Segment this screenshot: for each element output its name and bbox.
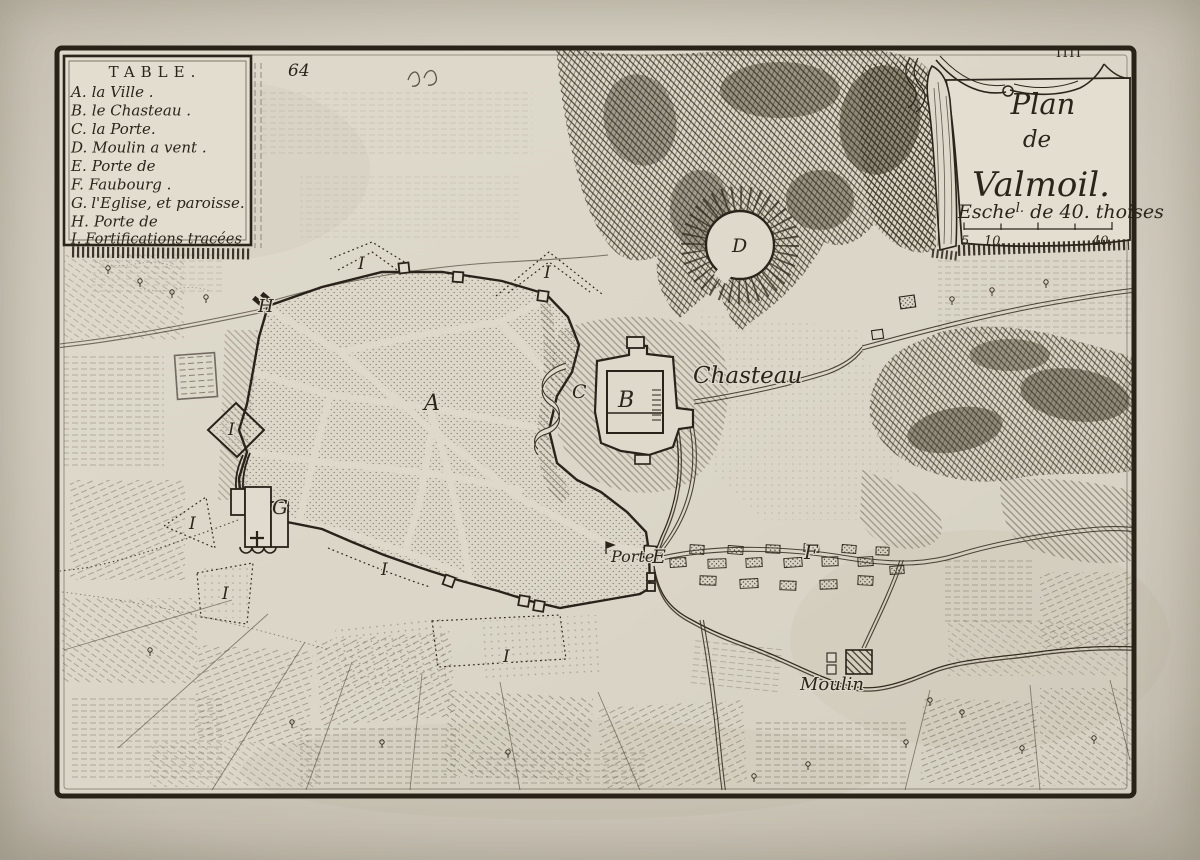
- letter-i-south-west: I: [221, 584, 229, 604]
- letter-d: D: [731, 235, 747, 257]
- letter-g: G: [272, 495, 288, 519]
- plate-number: 64: [288, 61, 310, 81]
- letter-i-west-bastion: I: [227, 420, 235, 440]
- cartouche-title-line2: de: [1023, 127, 1051, 153]
- scale-tick-5: 5.: [961, 234, 973, 249]
- legend-item-i: I.Fortifications tracées: [70, 232, 242, 248]
- legend-item-a: A.la Ville .: [69, 83, 154, 101]
- letter-i-south-east: I: [502, 647, 510, 667]
- letter-i-west: I: [188, 514, 196, 534]
- letter-a: A: [422, 391, 440, 416]
- letter-e: E: [651, 546, 666, 568]
- legend-item-c: C.la Porte.: [71, 120, 156, 138]
- castle-gate-hatch: [652, 390, 661, 420]
- scale-tick-40: 40.: [1091, 234, 1113, 249]
- title-cartouche: Plan de Valmoil. Eschel. de 40. thoises …: [906, 56, 1164, 256]
- letter-f: F: [803, 540, 819, 564]
- letter-i-north-west: I: [357, 254, 365, 274]
- letter-b: B: [617, 388, 634, 413]
- cartouche-title-line3: Valmoil.: [972, 165, 1110, 205]
- letter-h: H: [257, 296, 274, 317]
- folio-number: IIII: [1056, 46, 1083, 61]
- label-porte: Porte: [610, 547, 654, 566]
- label-chasteau: Chasteau: [693, 363, 802, 389]
- scale-tick-10: 10.: [984, 234, 1005, 249]
- letter-i-south: I: [380, 560, 388, 580]
- legend-title: TABLE.: [109, 63, 202, 81]
- castle-north-tower: [627, 337, 644, 348]
- scale-label: Eschel. de 40. thoises: [957, 201, 1164, 223]
- letter-c: C: [572, 381, 587, 403]
- engraving-sheet: Chasteau Porte Moulin A B C D E F G H I …: [0, 0, 1200, 860]
- map-plan-svg: Chasteau Porte Moulin A B C D E F G H I …: [0, 0, 1200, 860]
- legend-item-e: E.Porte de: [70, 157, 156, 175]
- legend-item-g: G.l'Eglise, et paroisse.: [71, 194, 245, 212]
- letter-i-north-east: I: [543, 263, 551, 283]
- west-enclosure: [175, 353, 218, 400]
- legend-item-h: H.Porte de: [70, 213, 158, 231]
- mill-buildings: [827, 650, 872, 674]
- cartouche-title-line1: Plan: [1010, 87, 1076, 121]
- legend-table: TABLE. A.la Ville . B.le Chasteau . C.la…: [64, 56, 263, 254]
- label-moulin: Moulin: [799, 674, 864, 695]
- castle-south-outwork: [635, 455, 650, 464]
